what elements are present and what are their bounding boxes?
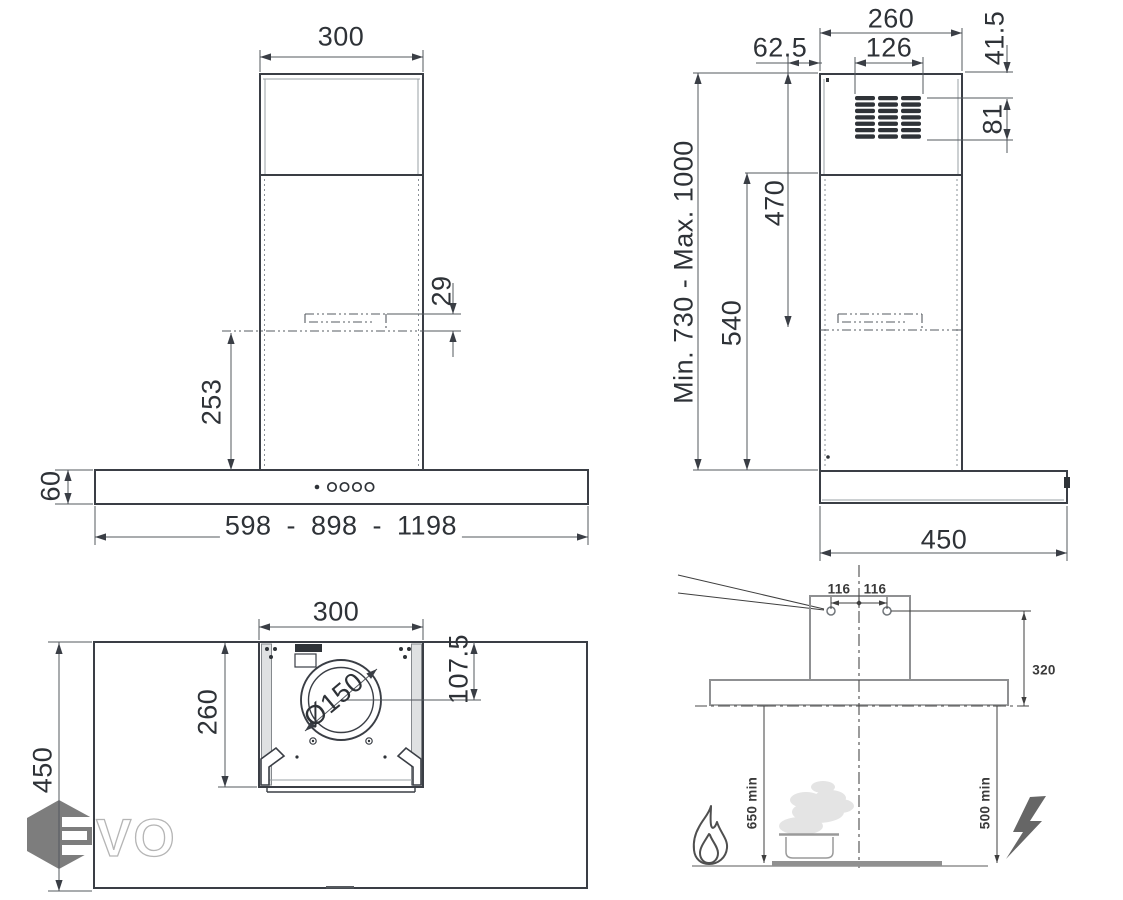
- technical-drawing-page: VO: [0, 0, 1123, 900]
- dim-install-gas-clearance: 650 min: [745, 777, 760, 829]
- dim-install-hole-left: 116: [828, 582, 851, 597]
- front-bracket-hidden-lines: [222, 314, 427, 331]
- dim-side-top-to-bracket: 470: [760, 180, 791, 227]
- dim-side-bracket-offset: 62.5: [753, 33, 808, 64]
- dim-front-body-height: 60: [36, 470, 67, 501]
- dim-side-height-range: Min. 730 - Max. 1000: [669, 140, 700, 404]
- steam-icon: [779, 781, 854, 835]
- pot-icon: [779, 835, 839, 859]
- dim-install-electric-clearance: 500 min: [978, 777, 993, 829]
- screw-dots-icon: [265, 647, 411, 659]
- side-bracket-hidden-lines: [820, 314, 963, 330]
- dim-top-body-depth: 450: [28, 747, 59, 794]
- side-hood-body: [820, 471, 1067, 503]
- dim-front-body-width-range: 598 - 898 - 1198: [220, 511, 462, 542]
- dim-top-box-width: 300: [313, 597, 360, 628]
- dim-top-box-depth: 260: [193, 689, 224, 736]
- motor-box: [259, 642, 423, 787]
- flame-icon: [694, 806, 727, 864]
- install-chimney-outline: [810, 596, 910, 680]
- control-buttons-icon: [315, 483, 374, 491]
- watermark-text: VO: [96, 809, 177, 868]
- dim-side-grille-height: 81: [978, 103, 1009, 134]
- dim-side-chimney-depth: 260: [868, 4, 915, 35]
- dim-front-bracket-thickness: 29: [427, 275, 458, 306]
- front-hood-body: [95, 470, 588, 504]
- dim-side-lower-chimney: 540: [717, 300, 748, 347]
- dim-top-duct-offset: 107.5: [444, 634, 475, 704]
- dim-front-bracket-to-body: 253: [197, 379, 228, 426]
- dim-front-chimney-width: 300: [318, 22, 365, 53]
- leader-lines: [678, 575, 824, 610]
- dim-side-grille-top-offset: 41.5: [980, 11, 1011, 66]
- dim-install-hole-right: 116: [864, 582, 887, 597]
- drawing-canvas: VO: [0, 0, 1123, 900]
- front-view: [55, 50, 588, 545]
- lightning-icon: [1006, 796, 1046, 859]
- vent-grille-icon: [855, 96, 921, 139]
- dim-side-body-depth: 450: [921, 525, 968, 556]
- watermark-logo: VO: [27, 800, 177, 869]
- side-view: [693, 28, 1070, 561]
- cooktop-bar: [772, 861, 942, 866]
- terminal-block: [295, 644, 322, 652]
- dim-install-bracket-drop: 320: [1032, 663, 1055, 678]
- dim-side-grille-width: 126: [866, 33, 913, 64]
